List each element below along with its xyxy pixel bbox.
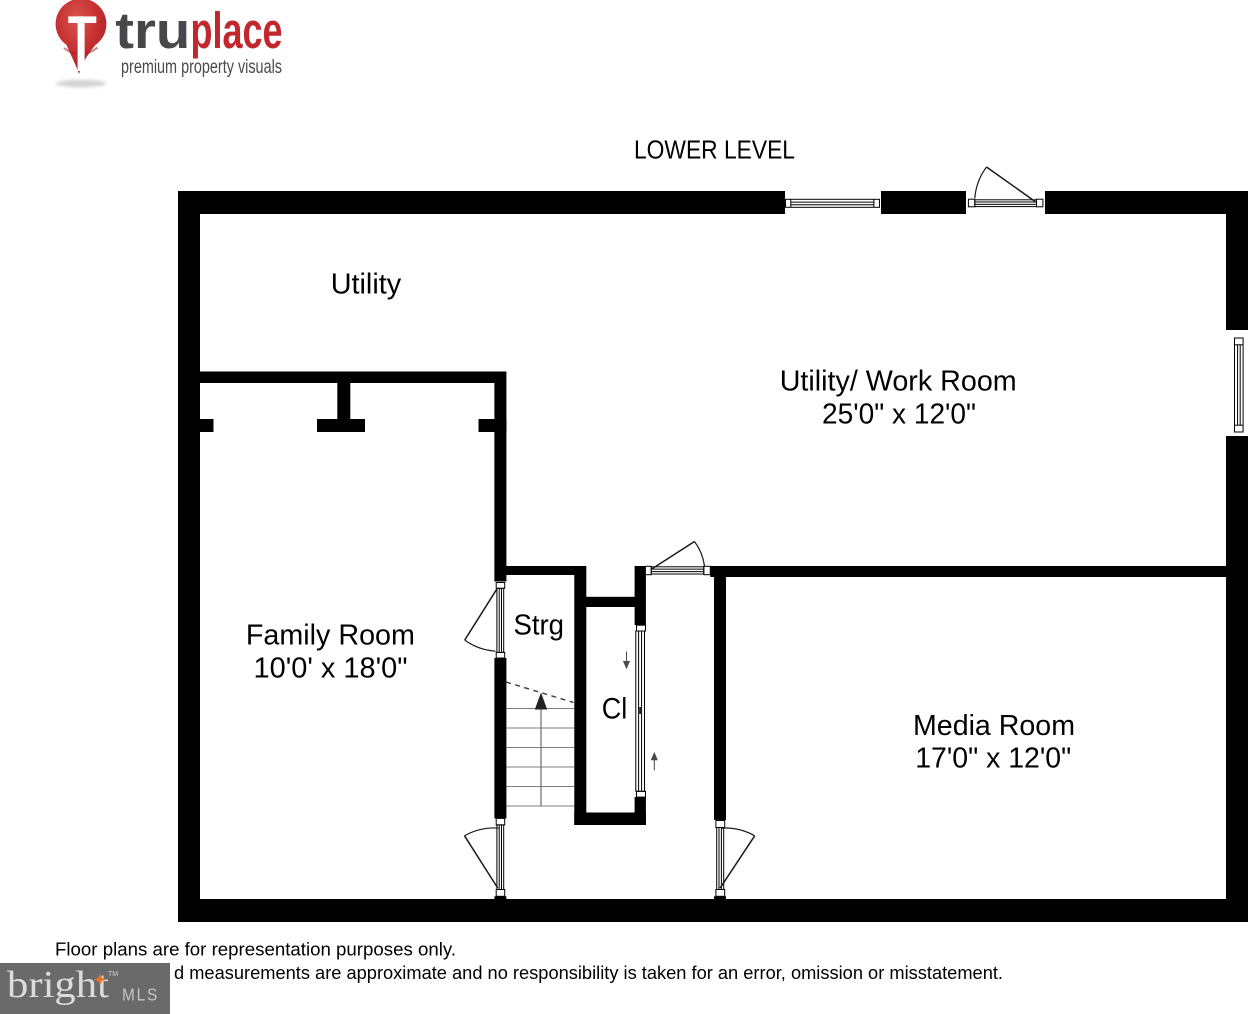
svg-text:Family Room: Family Room: [246, 620, 415, 652]
svg-text:Media Room: Media Room: [913, 710, 1075, 742]
svg-text:premium property visuals: premium property visuals: [121, 56, 282, 78]
svg-text:Utility/ Work Room: Utility/ Work Room: [780, 366, 1017, 398]
svg-text:LOWER LEVEL: LOWER LEVEL: [634, 135, 795, 165]
svg-text:Strg: Strg: [514, 609, 565, 641]
svg-text:10'0' x 18'0": 10'0' x 18'0": [254, 653, 408, 685]
svg-text:Utility: Utility: [331, 269, 402, 301]
svg-text:TM: TM: [108, 971, 118, 978]
svg-text:place: place: [191, 2, 283, 59]
svg-text:d measurements are approximate: d measurements are approximate and no re…: [174, 962, 1003, 983]
svg-text:MLS: MLS: [122, 985, 159, 1005]
svg-text:Cl: Cl: [602, 692, 628, 725]
svg-text:Floor plans are for representa: Floor plans are for representation purpo…: [55, 939, 456, 960]
svg-text:tru: tru: [115, 2, 190, 59]
svg-text:bright: bright: [7, 964, 109, 1006]
svg-text:25'0" x 12'0": 25'0" x 12'0": [822, 399, 976, 431]
svg-text:17'0" x 12'0": 17'0" x 12'0": [915, 743, 1071, 775]
